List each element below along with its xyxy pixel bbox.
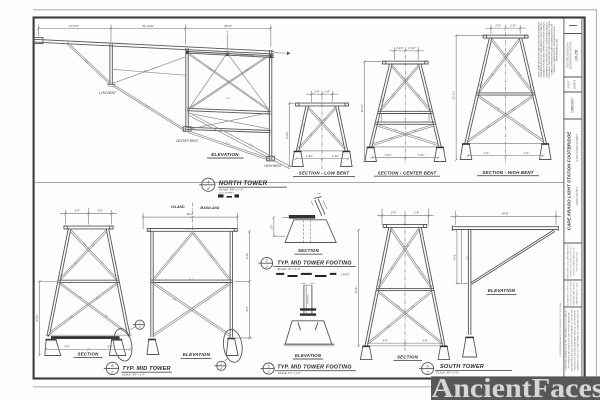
svg-text:SECTION - LOW BENT: SECTION - LOW BENT	[299, 171, 350, 176]
svg-text:SCALE: 1½″ = 1′-0″: SCALE: 1½″ = 1′-0″	[278, 371, 301, 375]
svg-text:ELEVATION: ELEVATION	[183, 352, 211, 357]
svg-text:2: 2	[138, 321, 141, 325]
svg-text:CHARLESTON, COOS COUNTY, OR: CHARLESTON, COOS COUNTY, OR	[570, 246, 573, 277]
svg-text:2: 2	[267, 364, 270, 368]
svg-text:REQUEST OF THE NATIONAL PARK S: REQUEST OF THE NATIONAL PARK SERVICE, DE…	[574, 310, 577, 370]
svg-text:SCALE: 3/8″ = 1′-0″: SCALE: 3/8″ = 1′-0″	[219, 187, 244, 191]
svg-text:ELEVATION: ELEVATION	[488, 288, 516, 293]
svg-text:2′-6″: 2′-6″	[413, 211, 419, 215]
svg-text:2: 2	[265, 259, 268, 263]
svg-text:6′-10″: 6′-10″	[246, 253, 249, 259]
svg-text:12′-6″: 12′-6″	[355, 287, 358, 293]
svg-text:12′-1¾″: 12′-1¾″	[453, 91, 456, 100]
svg-text:CENTER BENT: CENTER BENT	[176, 139, 200, 143]
svg-text:40′-0″: 40′-0″	[224, 24, 233, 28]
svg-text:16′-1″: 16′-1″	[188, 279, 193, 281]
svg-text:MEASURED DRAWINGS OF THE CAPE: MEASURED DRAWINGS OF THE CAPE ARAGO LIGH…	[565, 310, 568, 370]
svg-text:ELEVATION: ELEVATION	[211, 152, 239, 157]
svg-text:2: 2	[138, 325, 141, 329]
svg-text:SURVEY NUMBER HAER OR-156: SURVEY NUMBER HAER OR-156	[573, 248, 576, 276]
svg-text:FOOTBRIDGE RECORDED FOR THE HI: FOOTBRIDGE RECORDED FOR THE HISTORIC AME…	[568, 312, 571, 368]
svg-text:9′-6″: 9′-6″	[423, 340, 428, 343]
svg-text:TYP. MID TOWER FOOTING: TYP. MID TOWER FOOTING	[277, 365, 352, 371]
svg-text:7′-4¾″: 7′-4¾″	[417, 154, 424, 157]
svg-text:COOS COUNTY: COOS COUNTY	[576, 186, 579, 205]
svg-text:2′-6″: 2′-6″	[509, 23, 515, 27]
svg-text:SCALE: 3/8″ = 1′-0″: SCALE: 3/8″ = 1′-0″	[122, 372, 145, 376]
svg-text:SEATTLE, WASHINGTON. VERIFIED: SEATTLE, WASHINGTON. VERIFIED BY FIELD	[553, 26, 556, 73]
svg-text:TYP. MID TOWER FOOTING: TYP. MID TOWER FOOTING	[277, 260, 352, 266]
svg-text:5′-6″: 5′-6″	[107, 345, 112, 349]
svg-text:5′-6″: 5′-6″	[64, 345, 69, 349]
svg-text:OREGON: OREGON	[571, 98, 575, 113]
svg-text:ELEVATION: ELEVATION	[295, 353, 322, 358]
svg-text:18′-6″: 18′-6″	[501, 212, 509, 216]
svg-text:NOTE: ADAPTED FROM DIMENSIONS: NOTE: ADAPTED FROM DIMENSIONS AND DRAWIN…	[537, 21, 540, 77]
svg-text:6′-4¾″: 6′-4¾″	[286, 131, 289, 138]
svg-text:7′-4¾″: 7′-4¾″	[384, 154, 391, 157]
svg-text:DELINEATED BY J. SMITH, 1999: DELINEATED BY J. SMITH, 1999	[567, 280, 570, 307]
svg-text:PREPARED BY WILSON & HULL CONS: PREPARED BY WILSON & HULL CONSULTING ENG…	[545, 21, 548, 77]
svg-text:2: 2	[265, 265, 268, 269]
svg-text:SECTION: SECTION	[397, 354, 419, 359]
svg-text:1′-0″: 1′-0″	[524, 152, 529, 155]
svg-text:ENGINEERING RECORD: ENGINEERING RECORD	[570, 41, 573, 69]
svg-text:6x6 POST: 6x6 POST	[307, 294, 309, 304]
svg-text:HIGH BENT: HIGH BENT	[264, 164, 282, 168]
svg-text:NORTH TOWER: NORTH TOWER	[219, 180, 268, 187]
svg-text:9′-6″: 9′-6″	[383, 340, 388, 343]
svg-text:3′-0″: 3′-0″	[74, 209, 79, 213]
svg-text:1′-0″: 1′-0″	[484, 152, 489, 155]
svg-text:SOUTH TOWER: SOUTH TOWER	[440, 364, 484, 370]
svg-text:3′-0″: 3′-0″	[97, 209, 102, 213]
svg-text:2′-6″: 2′-6″	[390, 211, 396, 215]
svg-text:2′-6″: 2′-6″	[494, 23, 500, 27]
svg-text:MEASUREMENT, 1993.: MEASUREMENT, 1993.	[556, 38, 559, 61]
svg-text:OR-156: OR-156	[575, 49, 579, 60]
svg-text:WASHINGTON D.C. BY GRAY & PAPE: WASHINGTON D.C. BY GRAY & PAPE INC, PORT…	[577, 309, 580, 370]
svg-text:14′-0″: 14′-0″	[225, 98, 230, 100]
svg-text:WASHINGTON D.C. 20013: WASHINGTON D.C. 20013	[576, 283, 579, 305]
svg-text:SECTION: SECTION	[78, 351, 100, 356]
svg-text:16′-1″: 16′-1″	[186, 212, 194, 216]
svg-text:GRAY WHALE COVE, CAPE ARAGO HW: GRAY WHALE COVE, CAPE ARAGO HWY	[567, 243, 570, 279]
svg-text:MAINLAND: MAINLAND	[200, 206, 220, 210]
svg-text:2′-0″: 2′-0″	[313, 89, 319, 93]
svg-text:1′-4¾″: 1′-4¾″	[306, 155, 313, 158]
svg-text:FIELD RECORDS, 1999: FIELD RECORDS, 1999	[577, 252, 579, 272]
svg-text:14′-1″: 14′-1″	[453, 254, 456, 260]
svg-text:1′-4¾″: 1′-4¾″	[332, 155, 339, 158]
svg-text:SCALE: 1½″ = 1′-0″: SCALE: 1½″ = 1′-0″	[278, 267, 301, 271]
svg-text:2: 2	[267, 370, 270, 374]
svg-text:3′-4¾″: 3′-4¾″	[396, 46, 403, 50]
svg-text:1′-6″: 1′-6″	[271, 225, 273, 230]
svg-text:CAPE ARAGO LIGHT STATION FOOTB: CAPE ARAGO LIGHT STATION FOOTBRIDGE	[566, 131, 571, 231]
svg-text:NATIONAL PARK SERVICE: NATIONAL PARK SERVICE	[573, 282, 576, 305]
svg-text:1 FOOT: 1 FOOT	[341, 275, 350, 277]
svg-text:SECTION - CENTER BENT: SECTION - CENTER BENT	[378, 170, 437, 175]
svg-text:PREPARED ENTITLED “CAPE ARAGO: PREPARED ENTITLED “CAPE ARAGO LIGHT STAT…	[540, 22, 543, 77]
svg-text:SOMETHING BRAND NAME 4-13-67,: SOMETHING BRAND NAME 4-13-67, 200 SURVEY…	[559, 302, 562, 357]
svg-text:3 OF 5: 3 OF 5	[573, 80, 577, 89]
svg-text:LOW BENT: LOW BENT	[99, 91, 117, 95]
svg-text:AncientFaces: AncientFaces	[432, 373, 600, 400]
svg-text:SECTION - HIGH BENT: SECTION - HIGH BENT	[482, 170, 533, 175]
svg-text:17′-1½″: 17′-1½″	[69, 24, 80, 28]
svg-text:10′-1¾″: 10′-1¾″	[361, 104, 364, 113]
svg-text:SECTION: SECTION	[298, 248, 320, 253]
svg-text:SHEET: SHEET	[568, 80, 571, 89]
svg-text:2′-0¾″: 2′-0¾″	[407, 46, 415, 50]
svg-text:2: 2	[219, 362, 222, 366]
svg-text:GUARD, THIRTEENTH COAST GUARD: GUARD, THIRTEENTH COAST GUARD DISTRICT A…	[551, 23, 554, 76]
svg-text:4x6 DECKING: 4x6 DECKING	[240, 55, 254, 58]
svg-text:CHARLESTON VICINITY: CHARLESTON VICINITY	[576, 134, 579, 163]
svg-text:ISLAND: ISLAND	[171, 205, 185, 209]
svg-text:4x12 BEAM: 4x12 BEAM	[186, 227, 197, 230]
svg-text:PORTLAND, OREGON FOR THE UNITE: PORTLAND, OREGON FOR THE UNITED STATES C…	[548, 20, 551, 78]
svg-text:U.S. DEPT OF THE INTERIOR: U.S. DEPT OF THE INTERIOR	[571, 280, 573, 306]
svg-text:ENGINEERING RECORD DURING THE: ENGINEERING RECORD DURING THE SUMMER OF …	[571, 309, 574, 371]
svg-text:0 1 2 3 4 FEET: 0 1 2 3 4 FEET	[219, 191, 234, 194]
svg-text:2′-0″: 2′-0″	[324, 89, 330, 93]
svg-text:ELEVATION PLANS AND SUPERSTRUC: ELEVATION PLANS AND SUPERSTRUCTURE DETAI…	[543, 21, 546, 77]
svg-text:31′-10¼″: 31′-10¼″	[142, 24, 155, 28]
svg-text:8′-0″: 8′-0″	[246, 306, 249, 311]
svg-text:TYP. MID TOWER: TYP. MID TOWER	[122, 366, 171, 372]
svg-text:8′-0¾″: 8′-0¾″	[36, 314, 39, 321]
svg-text:2: 2	[219, 366, 222, 370]
